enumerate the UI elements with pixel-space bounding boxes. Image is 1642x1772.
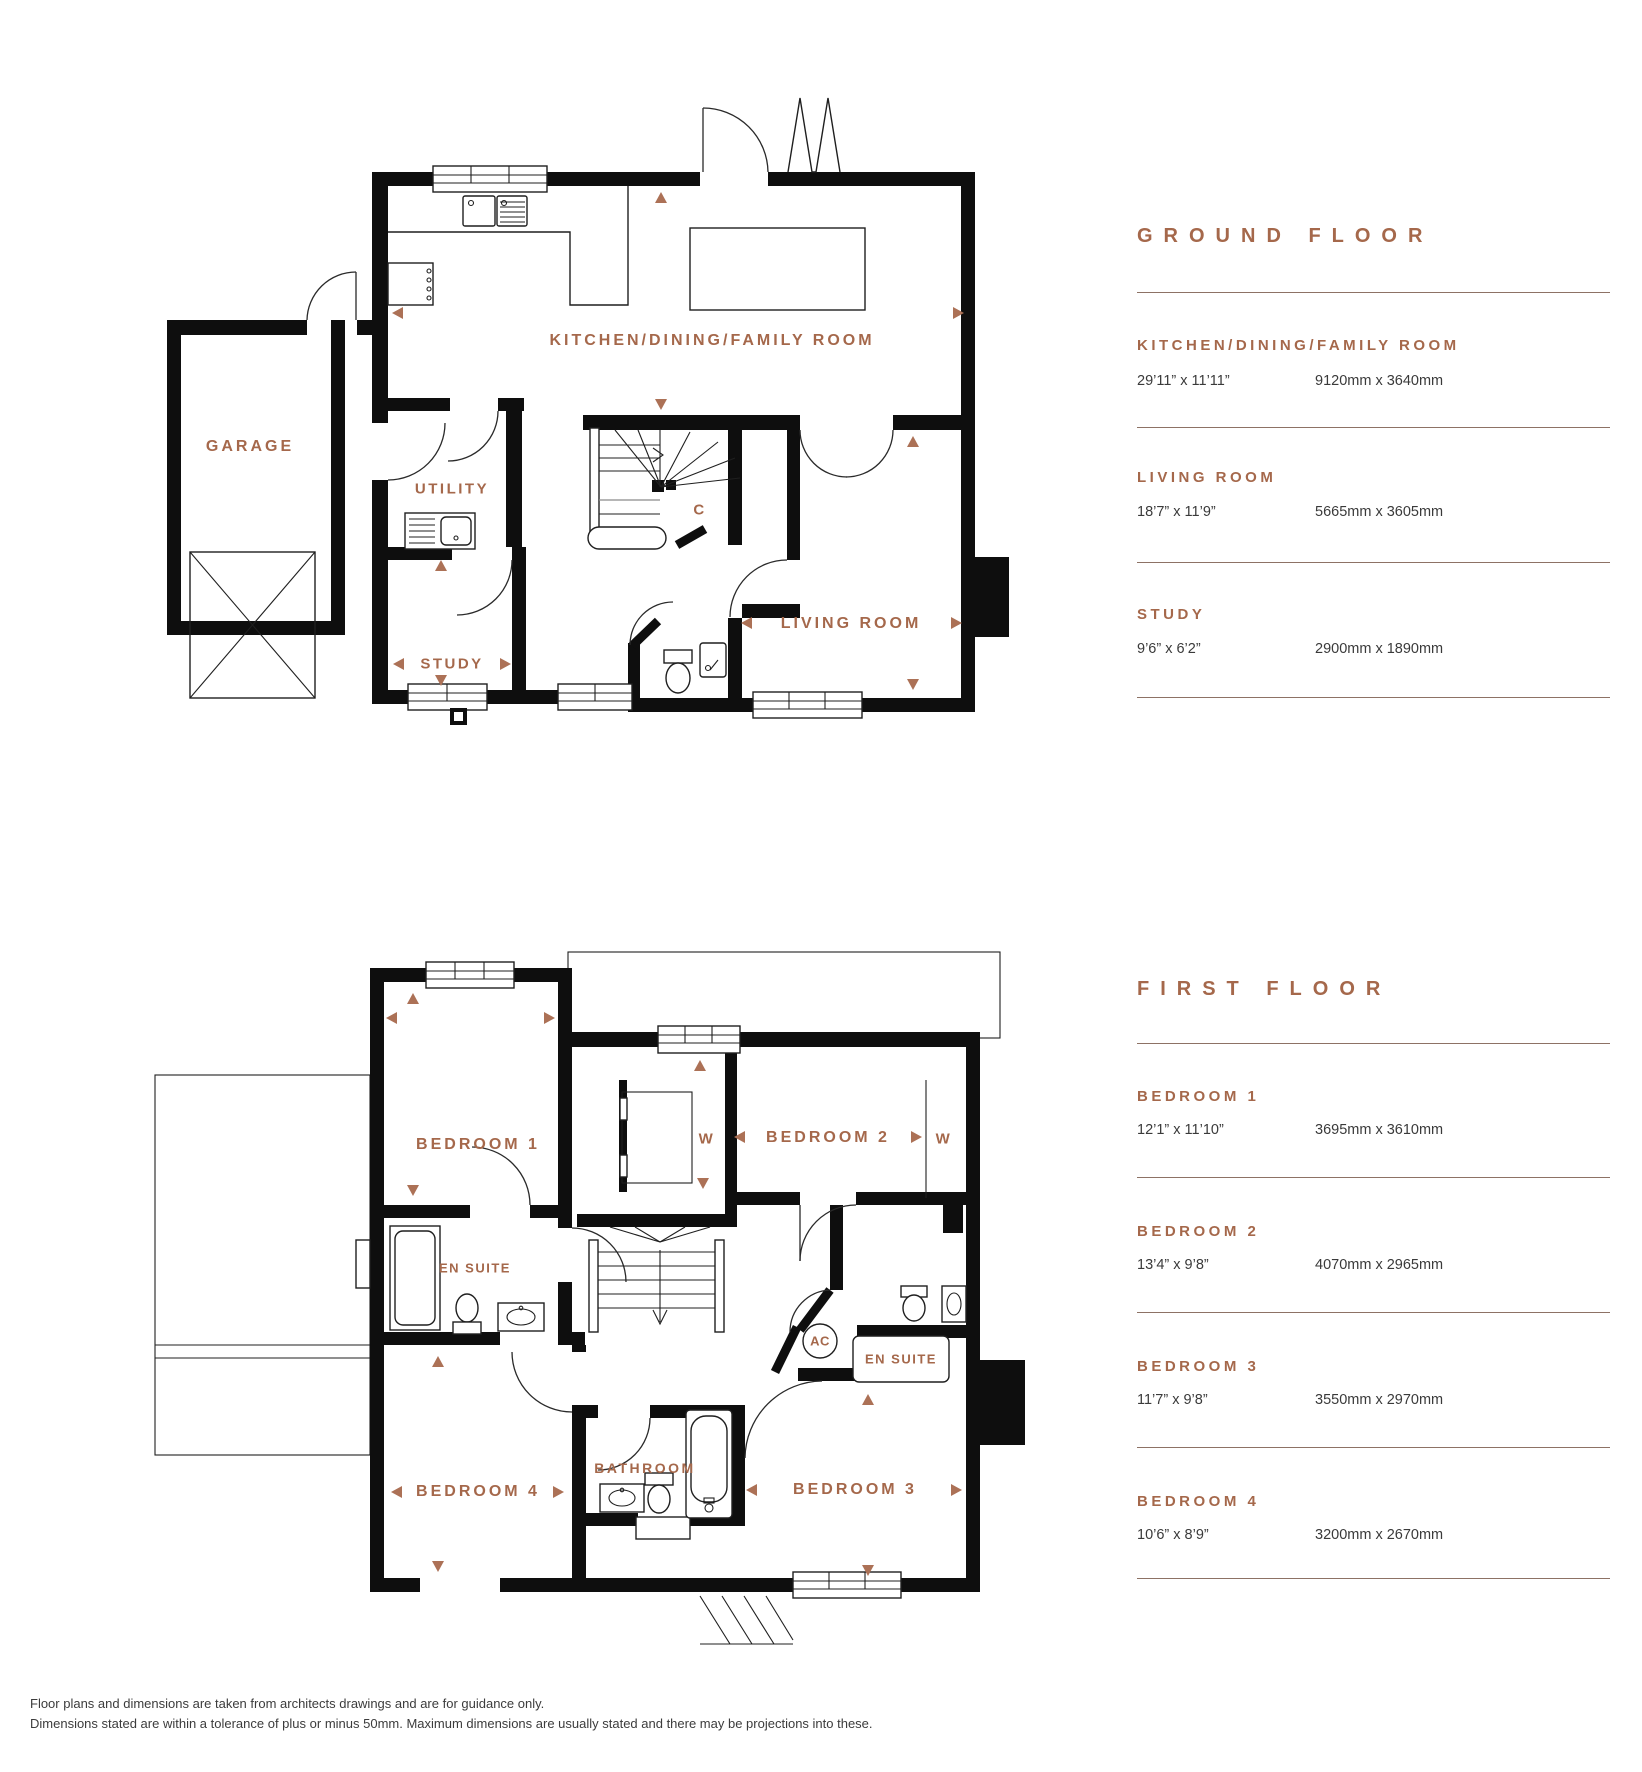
legend-bed2-name: BEDROOM 2	[1137, 1223, 1259, 1240]
kitchen-island	[690, 228, 865, 310]
study-label: STUDY	[420, 656, 483, 673]
window-bed1	[426, 962, 514, 988]
legend-kitchen-name: KITCHEN/DINING/FAMILY ROOM	[1137, 337, 1460, 354]
floorplan-drawing	[0, 0, 1642, 1772]
ensuite2-label: EN SUITE	[865, 1352, 937, 1367]
utility-door	[448, 411, 498, 461]
divider	[1137, 292, 1610, 293]
utility-label: UTILITY	[415, 481, 489, 498]
living-room-label: LIVING ROOM	[781, 615, 922, 633]
legend-bed3-imperial: 11’7” x 9’8”	[1137, 1392, 1208, 1408]
ground-floor-heading: GROUND FLOOR	[1137, 225, 1433, 248]
window-bed3	[793, 1572, 901, 1598]
chimney-bump-ff	[980, 1360, 1025, 1445]
window-hall	[558, 684, 632, 710]
ensuite1-shower-icon	[390, 1226, 440, 1330]
divider	[1137, 1177, 1610, 1178]
bedroom1-label: BEDROOM 1	[416, 1136, 540, 1154]
kitchen-label: KITCHEN/DINING/FAMILY ROOM	[549, 332, 874, 350]
divider	[1137, 697, 1610, 698]
footer-disclaimer-line1: Floor plans and dimensions are taken fro…	[30, 1696, 544, 1711]
divider	[1137, 1447, 1610, 1448]
window-bathroom	[636, 1517, 690, 1539]
chimney-bump-gf	[975, 557, 1009, 637]
utility-external-door	[388, 423, 445, 480]
legend-bed1-name: BEDROOM 1	[1137, 1088, 1259, 1105]
divider	[1137, 562, 1610, 563]
bedroom3-label: BEDROOM 3	[793, 1481, 917, 1499]
canopy-zigzag	[788, 98, 840, 172]
study-door	[457, 560, 512, 615]
bed2-door	[800, 1205, 856, 1261]
footer-disclaimer-line2: Dimensions stated are within a tolerance…	[30, 1716, 873, 1731]
bathroom-label: BATHROOM	[594, 1460, 695, 1476]
radiator-icon	[356, 1240, 370, 1288]
legend-bed2-imperial: 13’4” x 9’8”	[1137, 1257, 1209, 1273]
garage-roof-outline	[155, 1075, 370, 1455]
garage-label: GARAGE	[206, 438, 294, 456]
legend-bed4-imperial: 10’6” x 8’9”	[1137, 1527, 1209, 1543]
wc-toilet-icon	[664, 650, 692, 693]
legend-study-name: STUDY	[1137, 606, 1205, 623]
legend-bed1-imperial: 12’1” x 11’10”	[1137, 1122, 1224, 1138]
divider	[1137, 1578, 1610, 1579]
utility-sink-icon	[405, 513, 475, 549]
window-bed2	[658, 1026, 740, 1053]
window-living	[753, 692, 862, 718]
first-floor-plan	[155, 952, 1025, 1644]
ensuite1-toilet-icon	[453, 1294, 481, 1334]
ensuite1-label: EN SUITE	[439, 1261, 511, 1276]
floorplan-page: GARAGE UTILITY STUDY KITCHEN/DINING/FAMI…	[0, 0, 1642, 1772]
ensuite2-toilet-icon	[901, 1286, 927, 1321]
legend-bed3-name: BEDROOM 3	[1137, 1358, 1259, 1375]
ac-label: AC	[810, 1334, 830, 1349]
legend-bed4-name: BEDROOM 4	[1137, 1493, 1259, 1510]
porch-roof-hatch	[700, 1596, 793, 1644]
divider	[1137, 1312, 1610, 1313]
legend-living-metric: 5665mm x 3605mm	[1315, 504, 1443, 520]
legend-living-name: LIVING ROOM	[1137, 469, 1276, 486]
legend-study-imperial: 9’6” x 6’2”	[1137, 641, 1201, 657]
front-door	[703, 108, 768, 172]
first-floor-heading: FIRST FLOOR	[1137, 978, 1391, 1001]
bedroom4-label: BEDROOM 4	[416, 1483, 540, 1501]
legend-bed2-metric: 4070mm x 2965mm	[1315, 1257, 1443, 1273]
bed1-door	[472, 1147, 530, 1205]
bed3-door	[745, 1381, 822, 1458]
meter-box-icon	[450, 708, 467, 725]
legend-bed1-metric: 3695mm x 3610mm	[1315, 1122, 1443, 1138]
french-doors	[800, 430, 893, 477]
wardrobe-bed1	[620, 1092, 692, 1183]
wardrobe1-label: W	[699, 1131, 716, 1148]
wc-basin-icon	[700, 643, 726, 677]
legend-living-imperial: 18’7” x 11’9”	[1137, 504, 1216, 520]
window-study	[408, 684, 487, 710]
legend-study-metric: 2900mm x 1890mm	[1315, 641, 1443, 657]
legend-bed3-metric: 3550mm x 2970mm	[1315, 1392, 1443, 1408]
bathroom-basin-icon	[600, 1484, 644, 1512]
legend-bed4-metric: 3200mm x 2670mm	[1315, 1527, 1443, 1543]
divider	[1137, 427, 1610, 428]
bedroom2-label: BEDROOM 2	[766, 1129, 890, 1147]
cupboard-label: C	[693, 502, 706, 519]
oven-icon	[388, 263, 433, 305]
ensuite1-basin-icon	[498, 1303, 544, 1331]
ensuite2-basin-icon	[942, 1286, 966, 1322]
legend-kitchen-metric: 9120mm x 3640mm	[1315, 373, 1443, 389]
bed4-door	[512, 1352, 572, 1412]
divider	[1137, 1043, 1610, 1044]
wardrobe2-label: W	[936, 1131, 953, 1148]
legend-kitchen-imperial: 29’11” x 11’11”	[1137, 373, 1230, 389]
bathroom-toilet-icon	[645, 1473, 673, 1513]
ensuite1-door	[572, 1228, 626, 1282]
garage-side-door	[307, 272, 356, 320]
dormer-outline	[568, 952, 1000, 1038]
window-kitchen	[433, 166, 547, 192]
